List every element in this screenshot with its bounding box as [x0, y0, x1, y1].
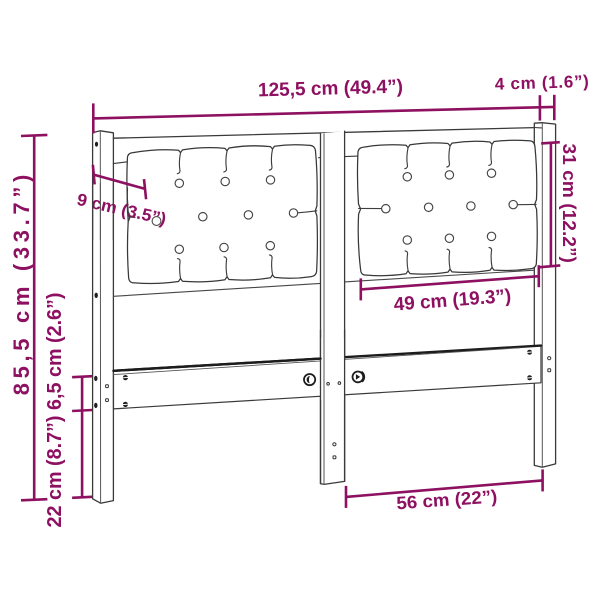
svg-text:31 cm (12.2”): 31 cm (12.2”) — [559, 143, 580, 263]
svg-text:125,5 cm (49.4”): 125,5 cm (49.4”) — [258, 77, 404, 102]
svg-text:22 cm (8.7”) 6,5 cm (2.6”): 22 cm (8.7”) 6,5 cm (2.6”) — [44, 293, 66, 528]
svg-text:4 cm (1.6”): 4 cm (1.6”) — [495, 72, 590, 94]
